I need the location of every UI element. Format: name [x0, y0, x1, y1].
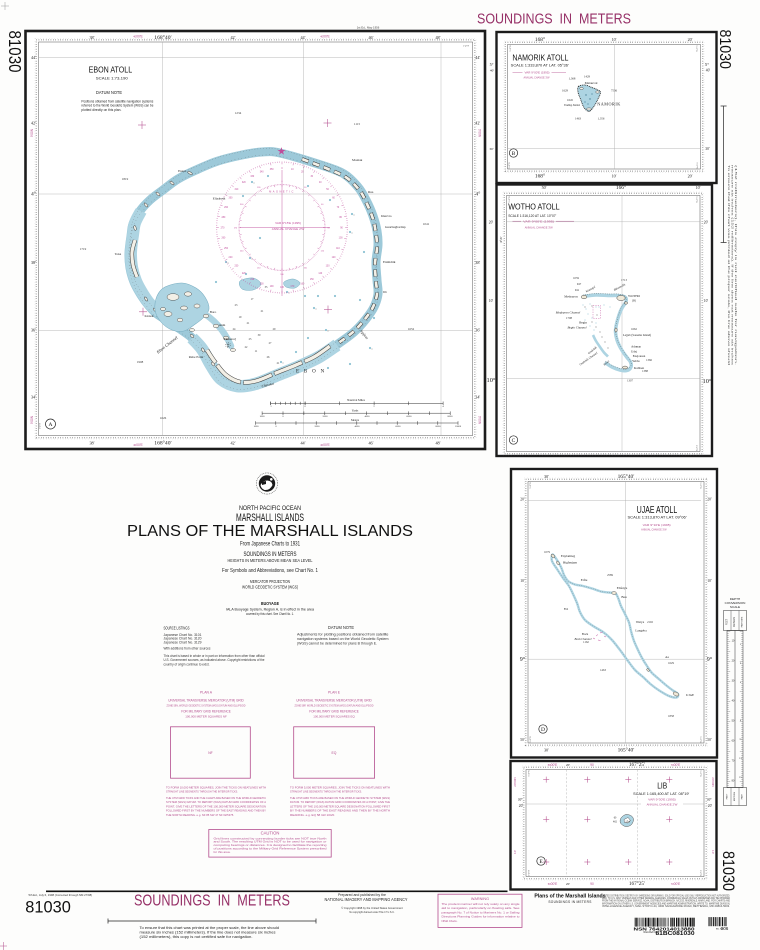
- svg-text:Yards: Yards: [352, 408, 359, 412]
- svg-text:44′: 44′: [300, 35, 305, 40]
- svg-text:METERS: METERS: [733, 617, 736, 627]
- svg-text:DATUM NOTE: DATUM NOTE: [96, 90, 122, 95]
- svg-text:NATIONAL IMAGERY AND MAPPING A: NATIONAL IMAGERY AND MAPPING AGENCY: [325, 897, 408, 902]
- svg-text:5°47′N: 5°47′N: [696, 162, 699, 169]
- svg-text:of positions according to th: of positions according to the Military G…: [214, 847, 327, 851]
- svg-text:navigation systems based on th: navigation systems based on the World Ge…: [297, 637, 389, 641]
- svg-text:40′: 40′: [490, 69, 494, 73]
- svg-text:9°: 9°: [707, 656, 713, 663]
- svg-text:50′: 50′: [707, 738, 712, 742]
- svg-text:947: 947: [577, 282, 582, 286]
- svg-text:(B): (B): [632, 300, 636, 303]
- svg-text:81030: 81030: [5, 31, 25, 73]
- svg-text:2000: 2000: [323, 415, 329, 418]
- svg-text:Enejousan: Enejousan: [633, 354, 646, 358]
- svg-text:E B O N: E B O N: [296, 370, 326, 375]
- svg-text:2000: 2000: [315, 425, 321, 428]
- svg-text:81030: 81030: [719, 851, 738, 891]
- svg-text:90: 90: [590, 882, 594, 886]
- svg-text:WOTHO ATOLL: WOTHO ATOLL: [508, 203, 560, 212]
- svg-text:4°: 4°: [475, 191, 480, 198]
- svg-text:DOD, TO U.S. NAVY VESSELS AND: DOD, TO U.S. NAVY VESSELS AND OTHER FEDE…: [602, 897, 730, 900]
- svg-text:Moniak: Moniak: [352, 158, 363, 162]
- svg-text:1819: 1819: [122, 177, 129, 181]
- svg-text:BUOYAGE: BUOYAGE: [261, 601, 279, 606]
- svg-text:5°47′N: 5°47′N: [528, 770, 531, 777]
- svg-text:8000: 8000: [436, 425, 442, 428]
- svg-text:5°47′N: 5°47′N: [528, 869, 531, 876]
- svg-text:FEET: FEET: [725, 618, 728, 625]
- svg-text:PLANS OF THE MARSHALL ISLANDS: PLANS OF THE MARSHALL ISLANDS: [127, 523, 413, 540]
- svg-text:5th Ed., July 6, 1998 (Correct: 5th Ed., July 6, 1998 (Corrected through…: [29, 893, 93, 897]
- svg-text:ANNUAL CHANGE 2′W: ANNUAL CHANGE 2′W: [272, 227, 305, 231]
- svg-text:20′: 20′: [707, 498, 712, 502]
- svg-text:1307: 1307: [627, 379, 633, 383]
- svg-text:100,000 METER SQUARES NF: 100,000 METER SQUARES NF: [185, 715, 227, 719]
- svg-text:5°47′N: 5°47′N: [509, 45, 512, 52]
- svg-text:WARNING: WARNING: [471, 897, 489, 901]
- svg-text:Aa: Aa: [665, 655, 669, 659]
- svg-text:NAMORIK ATOLL: NAMORIK ATOLL: [512, 54, 568, 63]
- svg-text:1234: 1234: [235, 111, 242, 115]
- svg-text:1388: 1388: [642, 369, 648, 373]
- svg-text:1713: 1713: [621, 278, 627, 282]
- svg-text:WOTHO: WOTHO: [628, 294, 641, 298]
- svg-text:8°: 8°: [707, 797, 711, 802]
- svg-text:7000′E: 7000′E: [671, 763, 681, 767]
- svg-text:38′: 38′: [475, 260, 480, 265]
- svg-text:A: A: [49, 422, 53, 428]
- svg-text:168°: 168°: [535, 36, 545, 43]
- svg-text:covered by this chart. See Cha: covered by this chart. See Chart No. 1.: [246, 612, 294, 616]
- svg-text:5°47′N: 5°47′N: [508, 162, 511, 169]
- svg-text:40: 40: [732, 700, 735, 703]
- svg-text:50′: 50′: [542, 185, 547, 190]
- svg-text:EQ: EQ: [332, 751, 337, 755]
- svg-text:Adjustments for plotting posit: Adjustments for plotting positions obtai…: [297, 633, 389, 637]
- svg-text:1st Ed., May 1956: 1st Ed., May 1956: [357, 25, 380, 29]
- svg-text:Watya: Watya: [636, 620, 645, 624]
- svg-text:plotted directly on this plan.: plotted directly on this plan.: [81, 108, 121, 112]
- svg-text:9′00N: 9′00N: [478, 416, 482, 425]
- svg-text:FROM THE NATIONAL OCEAN SERVIC: FROM THE NATIONAL OCEAN SERVICE, NOAA, D…: [602, 900, 730, 903]
- svg-text:5°47′N: 5°47′N: [699, 482, 702, 489]
- svg-text:THE NORTH READING. e.g. NF: THE NORTH READING. e.g. NF 85 SW 47 NF 6…: [166, 813, 234, 817]
- svg-text:1858: 1858: [668, 714, 674, 718]
- svg-text:HEIGHTS IN METERS ABOVE MEAN S: HEIGHTS IN METERS ABOVE MEAN SEA LEVEL: [228, 558, 313, 563]
- svg-text:42′: 42′: [475, 121, 480, 126]
- svg-text:30: 30: [732, 680, 735, 683]
- svg-text:10′: 10′: [696, 185, 701, 190]
- svg-text:100,000 METER SQUARES EQ: 100,000 METER SQUARES EQ: [313, 715, 355, 719]
- svg-text:20: 20: [732, 660, 735, 663]
- svg-text:48′: 48′: [435, 35, 440, 40]
- svg-text:FOR MILITARY GRID REFERENCE: FOR MILITARY GRID REFERENCE: [181, 708, 231, 713]
- svg-text:(WGS) cannot be determined for: (WGS) cannot be determined for plans B t…: [297, 641, 377, 645]
- svg-text:MERCATOR PROJECTION: MERCATOR PROJECTION: [250, 579, 290, 584]
- svg-text:10′: 10′: [513, 850, 517, 854]
- svg-text:81030: 81030: [25, 898, 71, 916]
- svg-text:50′: 50′: [520, 738, 525, 742]
- svg-text:20′: 20′: [520, 498, 525, 502]
- svg-text:10′: 10′: [704, 299, 709, 303]
- svg-text:34′: 34′: [31, 395, 36, 400]
- svg-text:167°25′: 167°25′: [629, 880, 645, 887]
- svg-text:1429: 1429: [584, 75, 591, 79]
- svg-text:STRAIGHT LINE SEGMENTS THROUGH: STRAIGHT LINE SEGMENTS THROUGH THE INTER…: [166, 790, 238, 794]
- svg-text:For Symbols and Abbreviations,: For Symbols and Abbreviations, see Chart…: [222, 568, 318, 574]
- svg-text:NAMORIK: NAMORIK: [597, 102, 621, 107]
- svg-text:(152 millimeters), this copy i: (152 millimeters), this copy is not cert…: [140, 935, 253, 939]
- svg-text:Nautical Miles: Nautical Miles: [347, 398, 366, 402]
- svg-text:Guarbugbartlap: Guarbugbartlap: [385, 225, 406, 229]
- svg-text:30′: 30′: [544, 474, 549, 479]
- svg-text:1626: 1626: [160, 416, 167, 420]
- svg-text:Anin: Anin: [219, 323, 226, 327]
- svg-text:5°47′N: 5°47′N: [695, 45, 698, 52]
- svg-text:81030: 81030: [716, 29, 733, 69]
- svg-text:5000′E: 5000′E: [548, 882, 558, 886]
- svg-text:INFORMATION ON OTHER U.S. GOVE: INFORMATION ON OTHER U.S. GOVERNMENT AGE…: [602, 902, 730, 905]
- svg-text:165°40′: 165°40′: [618, 473, 635, 480]
- svg-text:LIB: LIB: [657, 782, 667, 791]
- svg-text:Enaui: Enaui: [178, 169, 186, 173]
- svg-text:PLAN A: PLAN A: [200, 691, 212, 695]
- svg-text:5°47′N: 5°47′N: [508, 196, 511, 203]
- svg-text:Bock: Bock: [582, 632, 589, 636]
- svg-text:20′: 20′: [688, 37, 693, 42]
- svg-text:FATH: FATH: [741, 793, 744, 799]
- svg-text:1463: 1463: [575, 117, 582, 121]
- svg-text:1662: 1662: [631, 327, 637, 331]
- svg-text:LIMITED DISTRIBUTION. DESTROY: LIMITED DISTRIBUTION. DESTROY BY SHREDDI…: [602, 894, 730, 897]
- svg-text:36′: 36′: [31, 328, 36, 333]
- svg-text:7: 7: [740, 701, 742, 703]
- svg-text:10′: 10′: [711, 850, 715, 854]
- svg-text:4000′E: 4000′E: [320, 35, 330, 39]
- svg-text:5°47′N: 5°47′N: [699, 870, 702, 877]
- svg-text:6000: 6000: [396, 425, 402, 428]
- svg-text:SCALE: SCALE: [730, 605, 740, 609]
- svg-text:5°47′N: 5°47′N: [699, 736, 702, 743]
- svg-text:VAR 9°30′E (1995): VAR 9°30′E (1995): [648, 798, 676, 802]
- svg-text:METERS: METERS: [734, 791, 736, 801]
- svg-text:46′: 46′: [368, 440, 373, 445]
- svg-text:1652: 1652: [408, 327, 415, 331]
- svg-text:1719: 1719: [80, 247, 87, 251]
- svg-text:20′: 20′: [708, 804, 713, 808]
- svg-text:1708: 1708: [566, 316, 573, 320]
- svg-text:1000: 1000: [260, 415, 266, 418]
- svg-text:Lejjab (Sonema Island): Lejjab (Sonema Island): [623, 333, 651, 337]
- svg-text:5°47′N: 5°47′N: [463, 45, 470, 48]
- svg-text:Medyaron Channel: Medyaron Channel: [555, 311, 581, 315]
- svg-text:10: 10: [732, 640, 735, 643]
- svg-text:4000′E: 4000′E: [320, 443, 330, 447]
- svg-text:D: D: [541, 727, 545, 733]
- svg-text:10°: 10°: [703, 378, 712, 385]
- svg-text:5000′E: 5000′E: [548, 763, 558, 767]
- svg-text:Erfie: Erfie: [581, 578, 588, 582]
- svg-text:VAR 9°00′E (1995): VAR 9°00′E (1995): [523, 219, 554, 223]
- svg-text:UJAE ATOLL: UJAE ATOLL: [637, 505, 678, 516]
- svg-text:ANNUAL CHANGE 3′W: ANNUAL CHANGE 3′W: [525, 225, 553, 229]
- svg-text:5°47′N: 5°47′N: [38, 422, 41, 429]
- svg-text:852: 852: [564, 607, 569, 611]
- svg-text:165°40′: 165°40′: [618, 747, 635, 754]
- svg-text:Enylamieg: Enylamieg: [561, 554, 576, 558]
- svg-text:STRAIGHT LINE SEGMENTS THROUGH: STRAIGHT LINE SEGMENTS THROUGH THE INTER…: [290, 790, 362, 794]
- svg-text:1162: 1162: [583, 640, 589, 644]
- svg-text:9: 9: [740, 720, 742, 722]
- svg-text:UJAE: UJAE: [686, 693, 694, 697]
- svg-text:11: 11: [739, 739, 742, 741]
- svg-text:46′: 46′: [368, 35, 373, 40]
- svg-text:Adrman: Adrman: [631, 345, 641, 349]
- svg-text:Trading Station: Trading Station: [564, 104, 581, 107]
- svg-text:40′: 40′: [706, 69, 711, 73]
- svg-text:42′: 42′: [230, 440, 235, 445]
- svg-text:1629: 1629: [668, 661, 674, 665]
- svg-text:SOURCE LISTINGS: SOURCE LISTINGS: [164, 626, 190, 631]
- svg-text:1000: 1000: [254, 425, 260, 428]
- svg-text:(152 millimeters), this copy i: (152 millimeters), this copy is not cert…: [734, 165, 738, 365]
- svg-text:20′: 20′: [489, 221, 494, 225]
- svg-text:1366: 1366: [646, 358, 652, 362]
- svg-text:SOUNDINGS IN METERS: SOUNDINGS IN METERS: [548, 900, 591, 904]
- svg-text:Begin Channel: Begin Channel: [567, 326, 586, 330]
- svg-text:80: 80: [732, 780, 735, 783]
- svg-text:1463: 1463: [600, 668, 606, 672]
- svg-text:5°47′N: 5°47′N: [529, 736, 532, 743]
- svg-text:Kiolek: Kiolek: [145, 314, 154, 318]
- svg-text:Enimdrik: Enimdrik: [383, 260, 396, 264]
- svg-text:30′: 30′: [544, 748, 549, 753]
- svg-text:8000: 8000: [448, 415, 454, 418]
- svg-text:VAR 9°00′E (1995): VAR 9°00′E (1995): [525, 71, 550, 75]
- svg-text:NF: NF: [208, 751, 213, 755]
- svg-text:VAR 9°15′E (1995): VAR 9°15′E (1995): [275, 221, 301, 225]
- svg-text:1115: 1115: [354, 122, 361, 126]
- svg-text:20′: 20′: [704, 221, 709, 225]
- svg-text:10′: 10′: [612, 174, 617, 179]
- svg-text:20′: 20′: [519, 804, 524, 808]
- svg-text:Bau: Bau: [621, 595, 627, 599]
- svg-text:UNIVERSAL TRANSVERSE MERCATOR: UNIVERSAL TRANSVERSE MERCATOR (UTM) GRID: [168, 698, 244, 703]
- svg-text:C: C: [512, 438, 516, 444]
- svg-text:81BC081030: 81BC081030: [656, 931, 695, 937]
- svg-text:ZONE 59N, WORLD GEODETIC SYST: ZONE 59N, WORLD GEODETIC SYSTEM (WGS) DA…: [167, 704, 246, 708]
- svg-text:EBON ATOLL: EBON ATOLL: [89, 65, 133, 75]
- svg-text:30′: 30′: [705, 147, 710, 151]
- svg-text:FATHOMS: FATHOMS: [741, 616, 744, 627]
- svg-text:70: 70: [732, 760, 735, 763]
- svg-text:4000: 4000: [355, 425, 361, 428]
- svg-text:SOUNDINGS IN METERS: SOUNDINGS IN METERS: [244, 551, 297, 558]
- svg-text:With additions from other sour: With additions from other sources: [164, 647, 211, 651]
- svg-text:Rabe Point: Rabe Point: [189, 355, 204, 359]
- svg-text:10′: 10′: [707, 579, 712, 583]
- svg-text:10000: 10000: [455, 425, 462, 428]
- svg-text:1645: 1645: [567, 98, 574, 102]
- svg-text:SOUNDINGS IN METERS: SOUNDINGS IN METERS: [477, 11, 631, 28]
- svg-text:5°47′N: 5°47′N: [695, 445, 698, 452]
- svg-text:Ebfetyu: Ebfetyu: [617, 586, 628, 590]
- svg-text:48′: 48′: [435, 440, 440, 445]
- svg-text:SCALE 1:73,190: SCALE 1:73,190: [96, 77, 128, 81]
- svg-text:1059: 1059: [573, 276, 579, 280]
- svg-text:15: 15: [739, 777, 742, 779]
- svg-text:38′: 38′: [31, 260, 36, 265]
- svg-text:10′: 10′: [489, 299, 494, 303]
- svg-text:20′: 20′: [688, 174, 693, 179]
- svg-text:166°: 166°: [616, 184, 626, 191]
- svg-text:Udej: Udej: [631, 350, 637, 354]
- svg-text:SCALE 1:165,400 AT LAT. 08°19: SCALE 1:165,400 AT LAT. 08°19′: [633, 792, 689, 796]
- svg-text:34′: 34′: [475, 395, 480, 400]
- svg-text:READING. e.g. EQ 58 GR 104: READING. e.g. EQ 58 GR 104/0.: [290, 813, 335, 817]
- svg-text:44′: 44′: [475, 55, 480, 60]
- svg-text:NIMA Charts.: NIMA Charts.: [442, 919, 458, 923]
- svg-text:3: 3: [740, 663, 742, 665]
- svg-text:168°40′: 168°40′: [154, 34, 171, 41]
- svg-text:Yebbo: Yebbo: [632, 359, 640, 363]
- svg-text:5: 5: [740, 682, 742, 684]
- svg-text:INTELLIGENCE AGENCY, MAIL STOP: INTELLIGENCE AGENCY, MAIL STOP D-44, 460…: [602, 905, 730, 908]
- svg-text:From Japanese Charts to 1931: From Japanese Charts to 1931: [240, 542, 300, 548]
- svg-text:Imarvra: Imarvra: [381, 214, 392, 218]
- svg-text:44′: 44′: [31, 55, 36, 60]
- svg-text:measure six inches (152 millim: measure six inches (152 millimeters). If…: [140, 930, 276, 934]
- svg-text:42′: 42′: [31, 121, 36, 126]
- svg-text:941: 941: [575, 288, 580, 292]
- svg-text:42′: 42′: [230, 35, 235, 40]
- svg-text:Boro: Boro: [210, 310, 217, 314]
- svg-text:168°40′: 168°40′: [154, 439, 171, 446]
- svg-text:Ekinerorj: Ekinerorj: [224, 337, 237, 341]
- svg-text:Begin: Begin: [579, 321, 587, 325]
- svg-text:50: 50: [732, 720, 735, 723]
- svg-text:FOR MILITARY GRID REFERENCE: FOR MILITARY GRID REFERENCE: [309, 708, 359, 713]
- svg-text:1629: 1629: [562, 89, 569, 93]
- svg-text:36′: 36′: [475, 328, 480, 333]
- svg-text:38′: 38′: [89, 35, 94, 40]
- svg-text:Japanese Chart No. 3129: Japanese Chart No. 3129: [164, 641, 202, 645]
- svg-text:Elizabeth: Elizabeth: [213, 197, 226, 201]
- svg-text:8°: 8°: [518, 797, 522, 802]
- svg-text:B: B: [512, 151, 516, 157]
- svg-text:SOUNDINGS IN METERS: SOUNDINGS IN METERS: [134, 893, 290, 910]
- svg-text:2102: 2102: [647, 620, 653, 624]
- svg-text:PLAN E: PLAN E: [328, 691, 340, 695]
- svg-text:4000′E: 4000′E: [133, 443, 143, 447]
- svg-text:WORLD GEODETIC SYSTEM (WGS): WORLD GEODETIC SYSTEM (WGS): [242, 585, 298, 590]
- svg-text:measure six inches (152 millim: measure six inches (152 millimeters). If…: [731, 165, 735, 366]
- svg-text:38′: 38′: [89, 440, 94, 445]
- svg-text:Langeba: Langeba: [635, 629, 647, 633]
- svg-text:13: 13: [739, 758, 742, 760]
- svg-text:9°: 9°: [520, 656, 526, 663]
- svg-text:ANNUAL CHANGE 3′W: ANNUAL CHANGE 3′W: [641, 528, 667, 532]
- svg-text:Matauval: Matauval: [585, 81, 598, 85]
- svg-text:SCALE 1:313,870 AT LAT. 09°06: SCALE 1:313,870 AT LAT. 09°06′: [628, 515, 687, 519]
- svg-text:UNIVERSAL TRANSVERSE MERCATOR: UNIVERSAL TRANSVERSE MERCATOR (UTM) GRID: [296, 698, 372, 703]
- svg-text:No copyright claimed under Tit: No copyright claimed under Title 17 U.S.…: [349, 911, 395, 914]
- svg-text:VAR 9°10′E (1995): VAR 9°10′E (1995): [643, 523, 671, 527]
- svg-text:1908: 1908: [137, 360, 144, 364]
- svg-text:5°: 5°: [705, 62, 709, 67]
- svg-text:4°: 4°: [31, 191, 36, 198]
- svg-text:60: 60: [732, 740, 735, 743]
- svg-text:4000: 4000: [365, 415, 371, 418]
- svg-text:FEET: FEET: [726, 793, 728, 799]
- svg-text:ANNUAL CHANGE 2′W: ANNUAL CHANGE 2′W: [647, 802, 678, 806]
- svg-text:To ensure that this chart was: To ensure that this chart was printed at…: [140, 926, 280, 930]
- svg-text:20′00N: 20′00N: [711, 777, 715, 786]
- svg-text:Bigfenjam: Bigfenjam: [563, 561, 577, 565]
- svg-text:1079: 1079: [544, 550, 550, 554]
- svg-text:7536: 7536: [611, 89, 618, 93]
- svg-text:Medyaron: Medyaron: [564, 295, 578, 299]
- svg-text:1041: 1041: [423, 222, 430, 226]
- svg-text:10′: 10′: [612, 37, 617, 42]
- svg-text:5°47′N: 5°47′N: [695, 196, 698, 203]
- svg-text:Meters: Meters: [351, 418, 360, 422]
- svg-text:SCALE 1:333,870 AT LAT. 05°36: SCALE 1:333,870 AT LAT. 05°36′: [511, 64, 569, 68]
- svg-text:MAGNETIC: MAGNETIC: [269, 190, 295, 194]
- svg-text:10°: 10°: [487, 377, 496, 384]
- svg-text:154: 154: [625, 820, 630, 824]
- svg-text:Plans of the Marshall Islands: Plans of the Marshall Islands: [534, 894, 605, 900]
- svg-text:© Copyright 1998 by the United: © Copyright 1998 by the United States Go…: [341, 906, 403, 910]
- svg-text:5°47′N: 5°47′N: [529, 482, 532, 489]
- svg-text:ANNUAL CHANGE 3′W: ANNUAL CHANGE 3′W: [524, 75, 550, 79]
- svg-text:5°47′N: 5°47′N: [699, 770, 702, 777]
- svg-text:20′: 20′: [566, 763, 570, 767]
- svg-text:9′00N: 9′00N: [478, 129, 482, 138]
- svg-text:90: 90: [590, 763, 594, 767]
- svg-text:2589: 2589: [607, 573, 613, 577]
- svg-text:5°: 5°: [490, 62, 494, 67]
- svg-text:7000′E: 7000′E: [671, 882, 681, 886]
- svg-text:DATUM NOTE: DATUM NOTE: [328, 625, 354, 630]
- svg-text:Toka: Toka: [115, 252, 122, 256]
- svg-text:ZONE 58P, WORLD GEODETIC SYST: ZONE 58P, WORLD GEODETIC SYSTEM (WGS) DA…: [295, 704, 374, 708]
- svg-text:country of origin continue to: country of origin continue to exist.: [164, 662, 210, 666]
- svg-text:006: 006: [721, 926, 729, 931]
- svg-text:Rua: Rua: [368, 190, 374, 194]
- svg-text:for this area.: for this area.: [214, 850, 231, 854]
- svg-text:1: 1: [740, 644, 742, 646]
- svg-text:6000: 6000: [407, 415, 413, 418]
- svg-text:168°: 168°: [535, 173, 545, 180]
- svg-text:9′00N: 9′00N: [30, 128, 34, 137]
- svg-text:10′: 10′: [520, 579, 525, 583]
- svg-text:CAUTION: CAUTION: [261, 831, 280, 836]
- svg-text:SCALE 1:316,120 AT LAT. 10°07′: SCALE 1:316,120 AT LAT. 10°07′: [508, 214, 556, 218]
- svg-text:30′: 30′: [489, 147, 493, 151]
- svg-text:NORTH PACIFIC OCEAN: NORTH PACIFIC OCEAN: [239, 505, 301, 512]
- svg-text:10°20′: 10°20′: [500, 236, 503, 243]
- svg-text:20′: 20′: [566, 882, 570, 886]
- svg-text:9′00N: 9′00N: [30, 415, 34, 424]
- svg-text:20′00N: 20′00N: [513, 777, 517, 786]
- svg-text:Jib: Jib: [383, 290, 387, 294]
- svg-text:4000′E: 4000′E: [133, 35, 143, 39]
- svg-text:167°25′: 167°25′: [629, 761, 645, 768]
- svg-text:44′: 44′: [300, 440, 305, 445]
